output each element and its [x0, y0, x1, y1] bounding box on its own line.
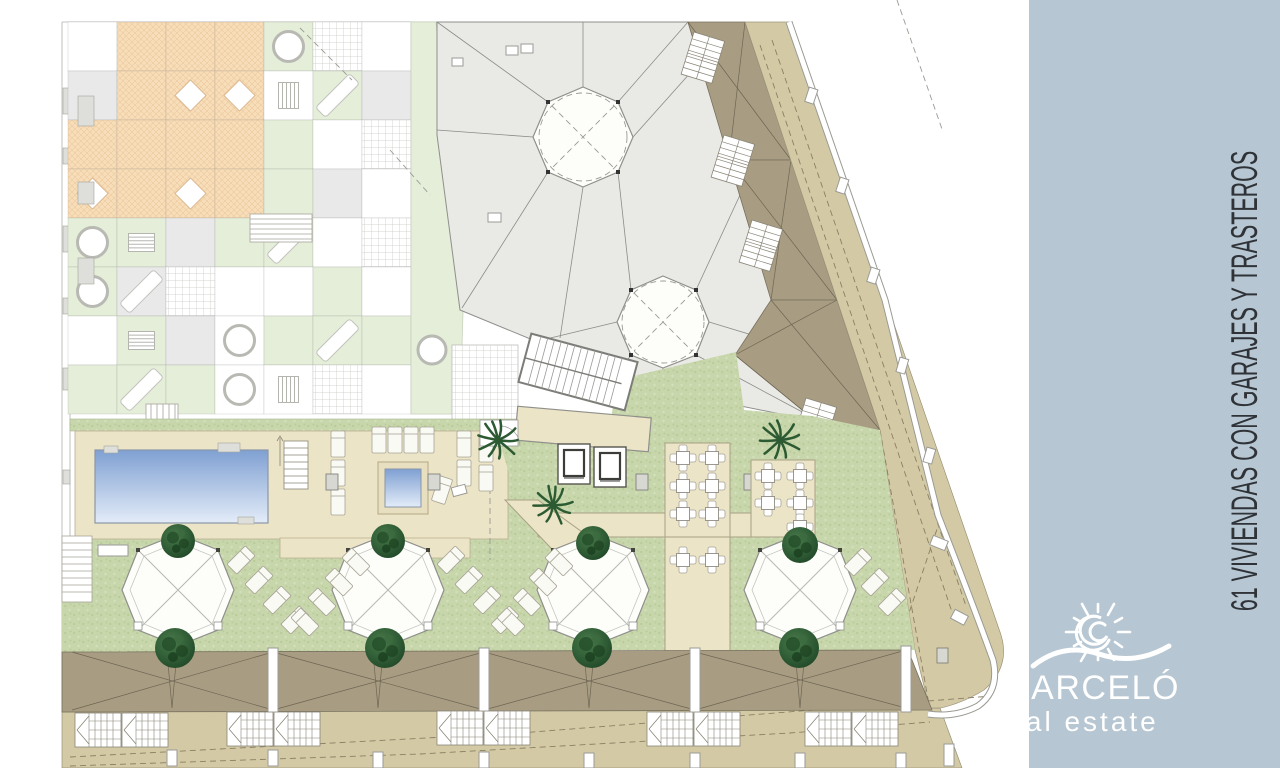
- brand-name: BARCELÓ: [1029, 669, 1180, 708]
- elevator-1: [558, 444, 590, 484]
- skylight-patio-lower: [617, 276, 709, 368]
- company-logo: BARCELÓ real estate: [1029, 0, 1280, 768]
- brochure-page: 61 VIVIENDAS CON GARAJES Y TRASTEROS BAR…: [0, 0, 1280, 768]
- elevator-2: [594, 447, 626, 487]
- deck-stair-left: [62, 536, 92, 602]
- swimming-pool: [95, 443, 268, 524]
- roof-garden-terrace: [68, 22, 463, 432]
- jacuzzi: [378, 462, 428, 514]
- floor-plan: [0, 0, 1030, 768]
- skylight-patio-upper: [533, 87, 633, 187]
- brand-tagline: real estate: [1029, 706, 1159, 738]
- sidebar-panel: 61 VIVIENDAS CON GARAJES Y TRASTEROS BAR…: [1029, 0, 1280, 768]
